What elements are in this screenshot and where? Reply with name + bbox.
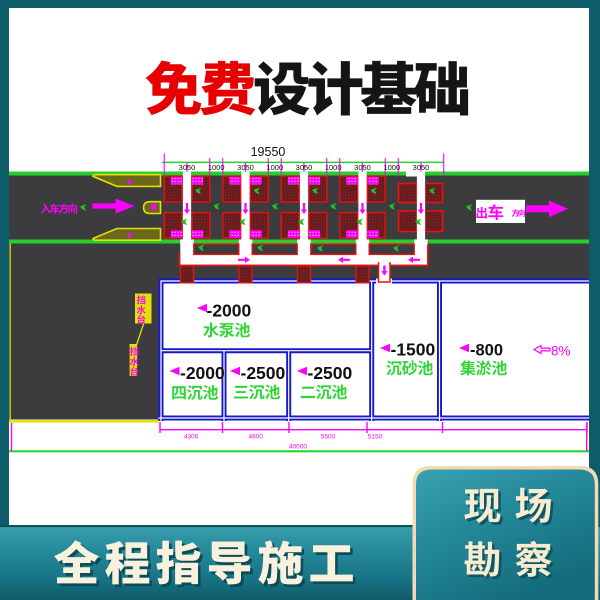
svg-text:3050: 3050 [179, 163, 196, 172]
svg-text:-2500: -2500 [308, 363, 353, 383]
svg-text:-2000: -2000 [207, 301, 252, 321]
svg-text:1000: 1000 [325, 163, 342, 172]
svg-text:3050: 3050 [413, 163, 430, 172]
svg-text:3050: 3050 [237, 163, 254, 172]
svg-text:-800: -800 [470, 342, 503, 360]
svg-text:4300: 4300 [184, 434, 199, 441]
svg-text:3050: 3050 [296, 163, 313, 172]
svg-text:19550: 19550 [251, 145, 286, 159]
svg-text:5500: 5500 [321, 434, 336, 441]
svg-text:-2000: -2000 [180, 363, 225, 383]
svg-text:1000: 1000 [383, 163, 400, 172]
svg-text:1000: 1000 [266, 163, 283, 172]
svg-text:-2500: -2500 [241, 363, 286, 383]
svg-text:5150: 5150 [368, 434, 383, 441]
svg-text:40000: 40000 [289, 444, 307, 451]
svg-text:8%: 8% [551, 344, 571, 359]
svg-text:1000: 1000 [208, 163, 225, 172]
svg-text:3050: 3050 [354, 163, 371, 172]
svg-text:4600: 4600 [248, 434, 263, 441]
svg-text:-1500: -1500 [391, 340, 436, 360]
